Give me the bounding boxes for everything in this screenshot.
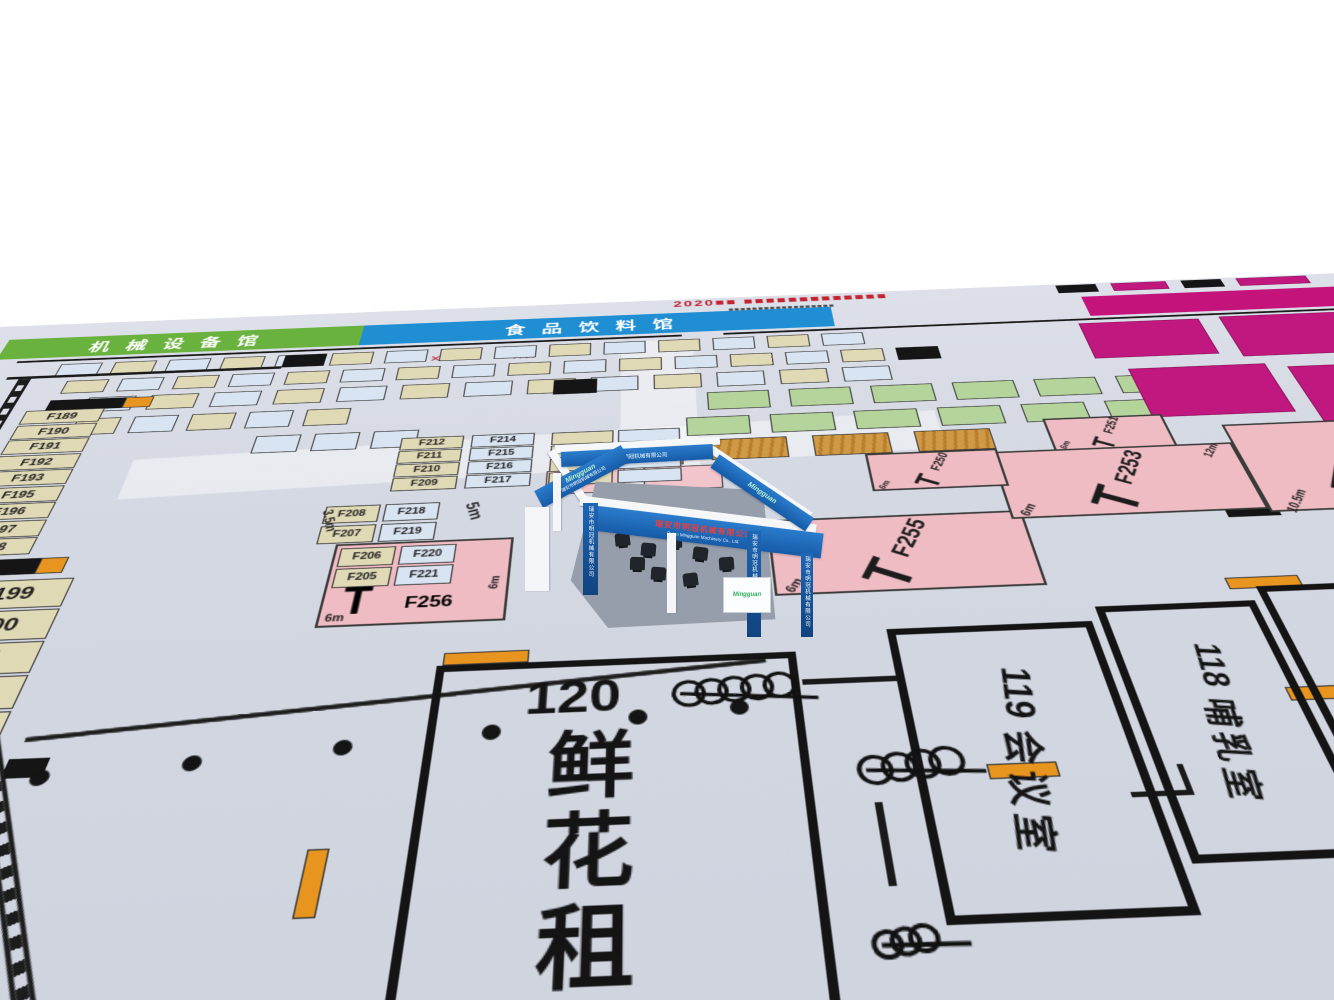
booth-label: F251	[1101, 415, 1121, 435]
booth-column	[667, 533, 676, 613]
booth-cell: F221	[394, 564, 454, 586]
t-logo: T	[1085, 434, 1124, 452]
booth-cell	[395, 366, 440, 380]
room-name: 鲜花租赁	[524, 726, 646, 1000]
booth-cell	[399, 383, 450, 399]
booth-block	[1055, 284, 1099, 293]
booth-cell: F219	[378, 522, 437, 542]
booth-banner-column: 瑞安市明冠机械有限公司	[583, 503, 598, 595]
booth-cell	[853, 408, 921, 429]
t-logo: T	[908, 471, 951, 492]
booth-cell	[228, 373, 276, 387]
structural-column	[331, 739, 354, 755]
booth-cell	[60, 379, 110, 393]
booth-size: 6m	[486, 575, 503, 589]
booth-cell	[302, 408, 351, 426]
booth-cell	[284, 370, 331, 384]
booth-cell	[712, 336, 755, 350]
boundary-wall	[0, 686, 57, 1000]
booth-cell	[730, 353, 774, 367]
booth-cell: F201	[0, 641, 45, 678]
t-booth-F251: T F251 6m	[1042, 414, 1178, 451]
booth-cell	[658, 339, 701, 353]
booth-cell	[590, 376, 638, 392]
booth-cell: F206	[336, 546, 396, 567]
booth-size: 12m	[1201, 442, 1221, 459]
booth-cell	[172, 375, 220, 389]
t-logo: T	[1078, 480, 1158, 520]
t-booth-F256: F206F220F205F221 T F256 6m 6m	[314, 537, 513, 628]
booth-block	[1218, 311, 1334, 357]
booth-cell	[463, 381, 513, 397]
booth-cell: F209	[390, 476, 458, 492]
booth-cell	[244, 410, 294, 428]
booth-block	[895, 346, 941, 360]
banner-text: 瑞安市明冠机械有限公司	[587, 506, 595, 578]
exhibition-floorplan-render: { "header": { "red_title": "2020■■ ■■■■■…	[0, 0, 1334, 1000]
booth-cell: F202	[0, 675, 29, 714]
booth-cell	[716, 371, 765, 387]
booth-cell	[619, 357, 662, 371]
banner-text: 瑞安市明冠机械有限公司	[803, 556, 811, 628]
room-number: 118	[1183, 642, 1238, 688]
booth-cell	[870, 383, 937, 403]
booth-label: F255	[886, 516, 933, 561]
booth-cell	[842, 365, 893, 381]
booth-cell	[788, 387, 854, 407]
booth-cell: F199	[0, 578, 74, 612]
booth-cell	[840, 348, 886, 362]
booth-cell	[494, 345, 537, 359]
booth-cell	[563, 359, 606, 373]
booth-cell	[1033, 377, 1103, 397]
booth-cell	[310, 432, 360, 451]
booth-white-panel	[525, 507, 549, 591]
booth-chair	[682, 572, 698, 587]
booth-chair	[651, 566, 667, 580]
booth-cell	[451, 364, 496, 378]
booth-chair	[692, 546, 708, 561]
booth-cell	[116, 377, 165, 391]
room-number: 119	[992, 666, 1046, 719]
booth-cell	[384, 350, 429, 364]
booth-cell	[674, 355, 718, 369]
booth-size: 6m	[323, 613, 345, 625]
booth-cell	[250, 434, 301, 453]
booth-column	[553, 473, 561, 531]
booth-cell	[507, 362, 551, 376]
booth-block	[1180, 279, 1225, 288]
booth-cell	[937, 405, 1007, 426]
booth-cell	[767, 334, 811, 348]
aisle-width-label: 3.5m	[319, 508, 340, 533]
room-name: 电梯	[1329, 637, 1334, 730]
t-booth-F250: T F250 6m	[865, 449, 1010, 492]
booth-label: F256	[403, 594, 454, 613]
booth-cell	[785, 350, 830, 364]
booth-cell	[603, 341, 645, 355]
booth-cell	[186, 413, 237, 431]
booth-cell	[439, 347, 483, 361]
booth-chair	[630, 557, 645, 571]
floorplan-plane: 2020■■ ■■■■■■■■■■■■■ ■■■■■■■■■■■■■■■■■■ …	[0, 273, 1334, 1000]
booth-cell: F200	[0, 608, 60, 644]
t-booth-F253: T F253 12m 6m	[989, 442, 1269, 519]
t-logo: T	[849, 552, 933, 597]
wall-marker-orange	[292, 849, 330, 920]
booth-cell	[952, 380, 1020, 400]
booth-cell	[127, 415, 179, 433]
booth-block	[281, 354, 327, 368]
booth-cell: F197	[0, 519, 47, 539]
booth-block	[1110, 281, 1170, 291]
booth-cell: F218	[382, 502, 440, 521]
booth-chair	[640, 542, 656, 556]
partition-loops	[881, 921, 946, 960]
booth-cell: F196	[0, 502, 56, 522]
booth-size: 6m	[1018, 502, 1040, 519]
booth-cell	[779, 368, 829, 384]
room-name: 会议室	[993, 728, 1074, 861]
exhibit-3d-booth: 瑞安市明冠机械有限公司 Mingguan Mingguan 瑞安市明冠机械有限公…	[515, 415, 825, 630]
booth-cell	[272, 388, 325, 404]
booth-block	[1078, 319, 1219, 359]
booth-cell	[549, 343, 592, 357]
t-logo: T	[1312, 459, 1334, 507]
booth-block	[553, 378, 597, 394]
booth-cell	[329, 352, 375, 366]
booth-cell	[654, 373, 703, 389]
booth-cell: F198	[0, 537, 38, 558]
booth-cell: F220	[398, 544, 457, 565]
booth-size: 6m	[1058, 439, 1073, 450]
booth-block	[1128, 363, 1296, 417]
booth-cell	[339, 368, 385, 382]
booth-cell	[821, 332, 866, 346]
counter-logo: Mingguan	[733, 592, 761, 598]
aisle-width-label: 5m	[461, 500, 487, 522]
booth-chair	[719, 556, 735, 570]
booth-size: 6m	[877, 479, 893, 491]
wall-marker-orange	[121, 396, 154, 408]
booth-cell	[707, 390, 771, 410]
booth-banner-column: 瑞安市明冠机械有限公司	[801, 553, 813, 637]
booth-label: F250	[928, 451, 951, 472]
booth-cell	[209, 391, 263, 407]
structural-column	[180, 755, 204, 772]
booth-block	[1235, 276, 1311, 286]
booth-cell	[336, 386, 388, 402]
booth-cell: F203	[0, 711, 12, 752]
reception-counter: Mingguan	[723, 577, 771, 613]
